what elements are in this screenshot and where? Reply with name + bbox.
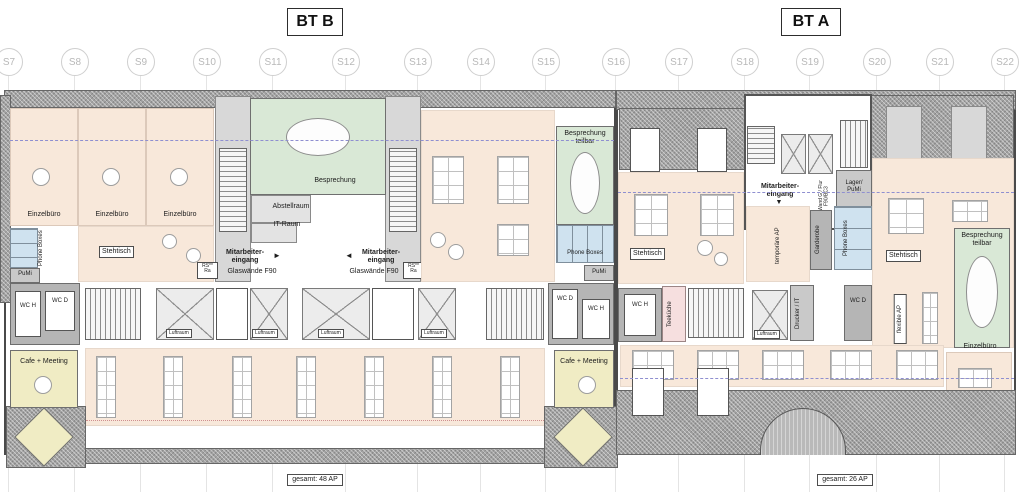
grid-label-s18: S18 — [731, 48, 759, 76]
desk-cluster — [232, 356, 252, 418]
escape-route-line — [10, 140, 614, 141]
escape-route-line — [86, 420, 544, 421]
desk-cluster — [364, 356, 384, 418]
arrow-right-icon: ► — [272, 252, 282, 261]
round-table-icon — [186, 248, 201, 263]
desk-cluster — [96, 356, 116, 418]
label-wc-d-bta: WC D — [846, 298, 870, 305]
grid-label-s9: S9 — [127, 48, 155, 76]
grid-label-s21: S21 — [926, 48, 954, 76]
escape-route-line — [618, 192, 1014, 193]
round-table-icon — [714, 252, 728, 266]
long-table-icon — [922, 292, 938, 344]
label-wc-d-btb-right: WC D — [553, 296, 577, 303]
room-wc-h-bta-inner — [624, 294, 656, 336]
room-wc-h-btb-left — [15, 291, 41, 337]
stair-btb-mid-right — [486, 288, 544, 340]
stair-bta-right — [840, 120, 868, 168]
building-title-btb: BT B — [287, 8, 343, 36]
grid-label-s16: S16 — [602, 48, 630, 76]
room-einzelbuero-2 — [78, 108, 146, 226]
elevator-shaft-1 — [781, 134, 806, 174]
round-table-icon — [102, 168, 120, 186]
label-luftraum-2: Luftraum — [252, 329, 278, 338]
label-einzelbuero-bta: Einzelbüro — [952, 343, 1008, 351]
round-table-icon — [162, 234, 177, 249]
desk-cluster — [432, 156, 464, 204]
label-mitarbeiter-eingang-right: Mitarbeiter- eingang — [354, 249, 408, 265]
grid-label-s12: S12 — [332, 48, 360, 76]
grid-label-s20: S20 — [863, 48, 891, 76]
grid-label-s14: S14 — [467, 48, 495, 76]
bta-bay-window-1 — [630, 128, 660, 172]
desk-cluster — [634, 194, 668, 236]
label-stehtisch-btb: Stehtisch — [99, 246, 134, 258]
conference-table-icon — [966, 256, 998, 328]
escape-route-line — [620, 378, 1014, 379]
room-phone-boxes-bta — [834, 206, 872, 270]
round-table-icon — [448, 244, 464, 260]
round-table-icon — [697, 240, 713, 256]
label-flexible-ap: flexible AP — [894, 294, 907, 344]
label-teekueche: Teeküche — [667, 290, 674, 338]
room-drucker-it — [790, 285, 814, 341]
label-phone-boxes-btb-left: Phone Boxes — [38, 226, 45, 270]
room-wc-d-bta — [844, 285, 872, 341]
room-wc-h-btb-right — [582, 299, 610, 339]
round-table-icon — [578, 376, 596, 394]
desk-cluster — [700, 194, 734, 236]
desk-cluster — [163, 356, 183, 418]
room-einzelbuero-3 — [146, 108, 214, 226]
desk-cluster — [830, 350, 872, 380]
grid-label-s8: S8 — [61, 48, 89, 76]
bta-dormer-2 — [951, 106, 987, 160]
desk-cluster — [500, 356, 520, 418]
grid-label-s7: S7 — [0, 48, 23, 76]
grid-label-s11: S11 — [259, 48, 287, 76]
label-garderobe: Garderobe — [815, 214, 822, 266]
elevator-shaft-2 — [808, 134, 833, 174]
core-room-2 — [372, 288, 414, 340]
label-cafe-meeting-left: Cafe + Meeting — [10, 358, 78, 366]
label-einzelbuero-2: Einzelbüro — [80, 211, 144, 219]
label-phone-boxes-btb-right: Phone Boxes — [556, 250, 614, 257]
label-luftraum-4: Luftraum — [421, 329, 447, 338]
room-wc-d-btb-left — [45, 291, 75, 331]
room-phone-boxes-btb-left — [10, 228, 38, 268]
label-pumi-btb-right: PuMi — [584, 269, 614, 276]
total-bta: gesamt: 26 AP — [817, 474, 873, 486]
bta-dormer-1 — [886, 106, 922, 160]
label-it-raum: IT-Raum — [258, 221, 316, 229]
label-mitarbeiter-eingang-bta: Mitarbeiter- eingang — [752, 183, 808, 199]
btb-facade-band-bottom — [82, 448, 550, 464]
label-stehtisch-bta-left: Stehtisch — [630, 248, 665, 260]
room-phone-boxes-btb-right — [556, 225, 614, 263]
round-table-icon — [170, 168, 188, 186]
desk-cluster — [762, 350, 804, 380]
label-drucker-it: Drucker / IT — [795, 289, 802, 337]
stair-bta-left — [747, 126, 775, 164]
floor-plan: S7 S8 S9 S10 S11 S12 S13 S14 S15 S16 S17… — [0, 0, 1024, 495]
stair-btb-right — [389, 148, 417, 232]
total-btb: gesamt: 48 AP — [287, 474, 343, 486]
grid-label-s19: S19 — [796, 48, 824, 76]
label-besprechung-btb: Besprechung — [295, 177, 375, 185]
arrow-left-icon: ◄ — [344, 252, 354, 261]
grid-label-s22: S22 — [991, 48, 1019, 76]
desk-cluster — [497, 224, 529, 256]
label-einzelbuero-1: Einzelbüro — [12, 211, 76, 219]
desk-cluster — [952, 200, 988, 222]
bta-bay-window-2 — [697, 128, 727, 172]
label-wc-h-bta: WC H — [628, 302, 652, 309]
desk-cluster — [896, 350, 938, 380]
label-wc-d-btb-left: WC D — [48, 298, 72, 305]
grid-label-s13: S13 — [404, 48, 432, 76]
stair-btb-mid-left — [85, 288, 141, 340]
label-besprechung-teilbar-bta: Besprechung teilbar — [955, 232, 1009, 248]
round-table-icon — [430, 232, 446, 248]
label-cafe-meeting-right: Cafe + Meeting — [552, 358, 616, 366]
grid-label-s15: S15 — [532, 48, 560, 76]
round-table-icon — [32, 168, 50, 186]
bta-bay-room-2 — [697, 368, 729, 416]
room-teekueche — [662, 286, 686, 342]
label-luftraum-bta: Luftraum — [754, 330, 780, 339]
label-rs-left: RS** Ra — [197, 262, 218, 279]
round-table-icon — [34, 376, 52, 394]
stair-btb-left — [219, 148, 247, 232]
bta-bay-room-1 — [632, 368, 664, 416]
label-abstellraum: Abstellraum — [246, 203, 336, 211]
grid-label-s17: S17 — [665, 48, 693, 76]
conference-table-icon — [286, 118, 350, 156]
core-room-1 — [216, 288, 248, 340]
label-glaswaende-left: Glaswände F90 — [222, 268, 282, 276]
label-pumi-btb-left: PuMi — [10, 271, 40, 278]
label-wc-h-btb-left: WC H — [16, 303, 40, 310]
conference-table-icon — [570, 152, 600, 214]
desk-cluster — [888, 198, 924, 234]
label-luftraum-3: Luftraum — [318, 329, 344, 338]
desk-cluster — [296, 356, 316, 418]
desk-cluster — [432, 356, 452, 418]
building-title-bta: BT A — [781, 8, 841, 36]
label-temporaere-ap: temporäre AP — [775, 218, 782, 274]
stair-bta-mid — [688, 288, 744, 338]
label-mitarbeiter-eingang-left: Mitarbeiter- eingang — [218, 249, 272, 265]
desk-cluster — [497, 156, 529, 204]
label-glaswaende-right: Glaswände F90 — [344, 268, 404, 276]
label-besprechung-teilbar-btb: Besprechung teilbar — [557, 130, 613, 146]
room-einzelbuero-1 — [10, 108, 78, 226]
label-stehtisch-bta-right: Stehtisch — [886, 250, 921, 262]
label-wc-h-btb-right: WC H — [584, 306, 608, 313]
label-einzelbuero-3: Einzelbüro — [148, 211, 212, 219]
label-luftraum-1: Luftraum — [166, 329, 192, 338]
label-phone-boxes-bta: Phone Boxes — [843, 210, 850, 266]
grid-label-s10: S10 — [193, 48, 221, 76]
